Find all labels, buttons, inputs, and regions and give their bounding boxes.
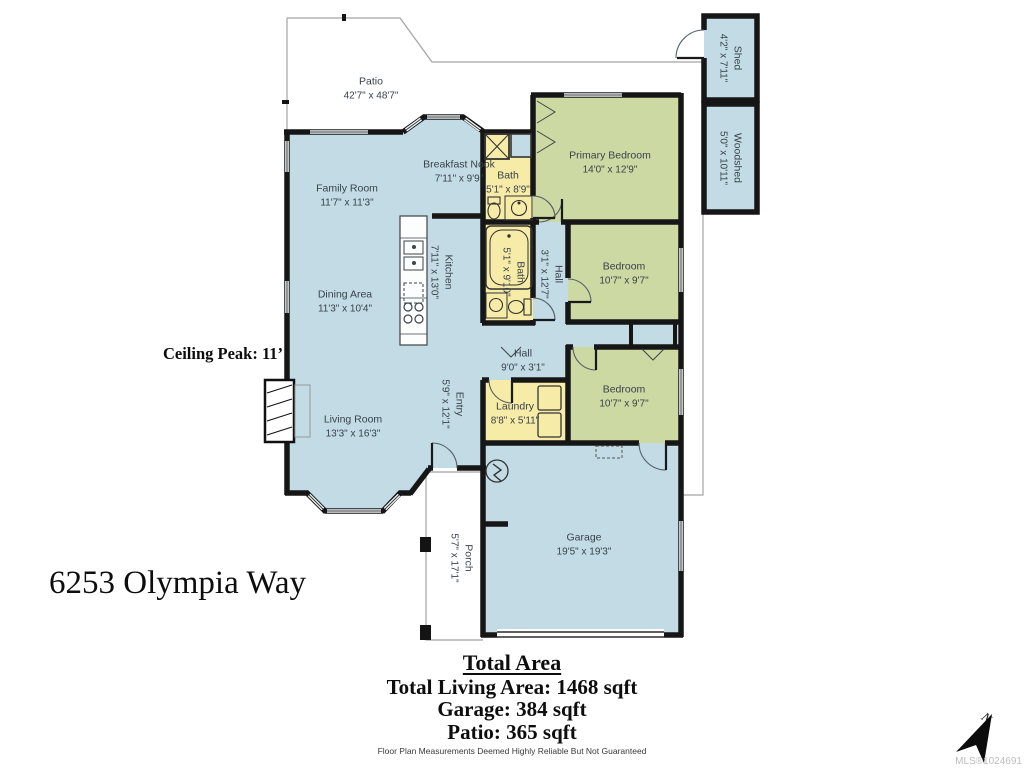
total-area-heading: Total Area bbox=[378, 650, 647, 676]
kitchen-counter-icon bbox=[400, 216, 427, 345]
floor-plan: Patio42'7" x 48'7" Shed4'2" x 7'11" Wood… bbox=[0, 0, 1024, 768]
room-label-bedroom2: Bedroom10'7" x 9'7" bbox=[599, 384, 648, 411]
linen-closet bbox=[511, 134, 531, 157]
room-label-garage: Garage19'5" x 19'3" bbox=[557, 532, 612, 559]
porch-post bbox=[420, 537, 431, 552]
room-label-primary-bedroom: Primary Bedroom14'0" x 12'9" bbox=[569, 150, 651, 177]
room-label-bath-second: Bath5'1" x 9'10" bbox=[500, 247, 527, 296]
room-label-bedroom1: Bedroom10'7" x 9'7" bbox=[599, 261, 648, 288]
room-label-woodshed: Woodshed5'0" x 10'11" bbox=[717, 131, 744, 185]
mls-watermark: MLS®1024691 bbox=[955, 756, 1022, 767]
disclaimer-text: Floor Plan Measurements Deemed Highly Re… bbox=[378, 746, 647, 756]
room-label-living-room: Living Room13'3" x 16'3" bbox=[324, 414, 382, 441]
porch-post bbox=[420, 625, 431, 640]
page-title: 6253 Olympia Way bbox=[49, 565, 306, 602]
room-label-bath-main: Bath5'1" x 8'9" bbox=[486, 170, 530, 197]
total-area-summary: Total Area Total Living Area: 1468 sqft … bbox=[378, 650, 647, 756]
room-label-breakfast-nook: Breakfast Nook7'11" x 9'9" bbox=[423, 159, 495, 186]
room-label-entry: Entry5'9" x 12'1" bbox=[439, 379, 466, 428]
room-label-shed: Shed4'2" x 7'11" bbox=[717, 34, 744, 83]
patio-outline bbox=[287, 18, 704, 62]
yard-right-outline bbox=[682, 212, 703, 495]
total-living-area: Total Living Area: 1468 sqft bbox=[378, 676, 647, 698]
garage-area: Garage: 384 sqft bbox=[378, 698, 647, 720]
room-label-hall-horizontal: Hall9'0" x 3'1" bbox=[501, 348, 545, 375]
room-label-porch: Porch5'7" x 17'1" bbox=[448, 533, 475, 582]
room-label-kitchen: Kitchen7'11" x 13'0" bbox=[428, 245, 455, 299]
garage-door bbox=[497, 629, 664, 641]
room-label-patio: Patio42'7" x 48'7" bbox=[344, 76, 399, 103]
ceiling-peak-note: Ceiling Peak: 11’ bbox=[163, 344, 283, 364]
room-label-hall-vertical: Hall3'1" x 12'7" bbox=[538, 249, 565, 298]
room-label-dining-area: Dining Area11'3" x 10'4" bbox=[318, 289, 372, 316]
patio-area: Patio: 365 sqft bbox=[378, 721, 647, 743]
room-label-family-room: Family Room11'7" x 11'3" bbox=[316, 183, 378, 210]
room-label-laundry: Laundry8'8" x 5'11" bbox=[491, 401, 540, 428]
